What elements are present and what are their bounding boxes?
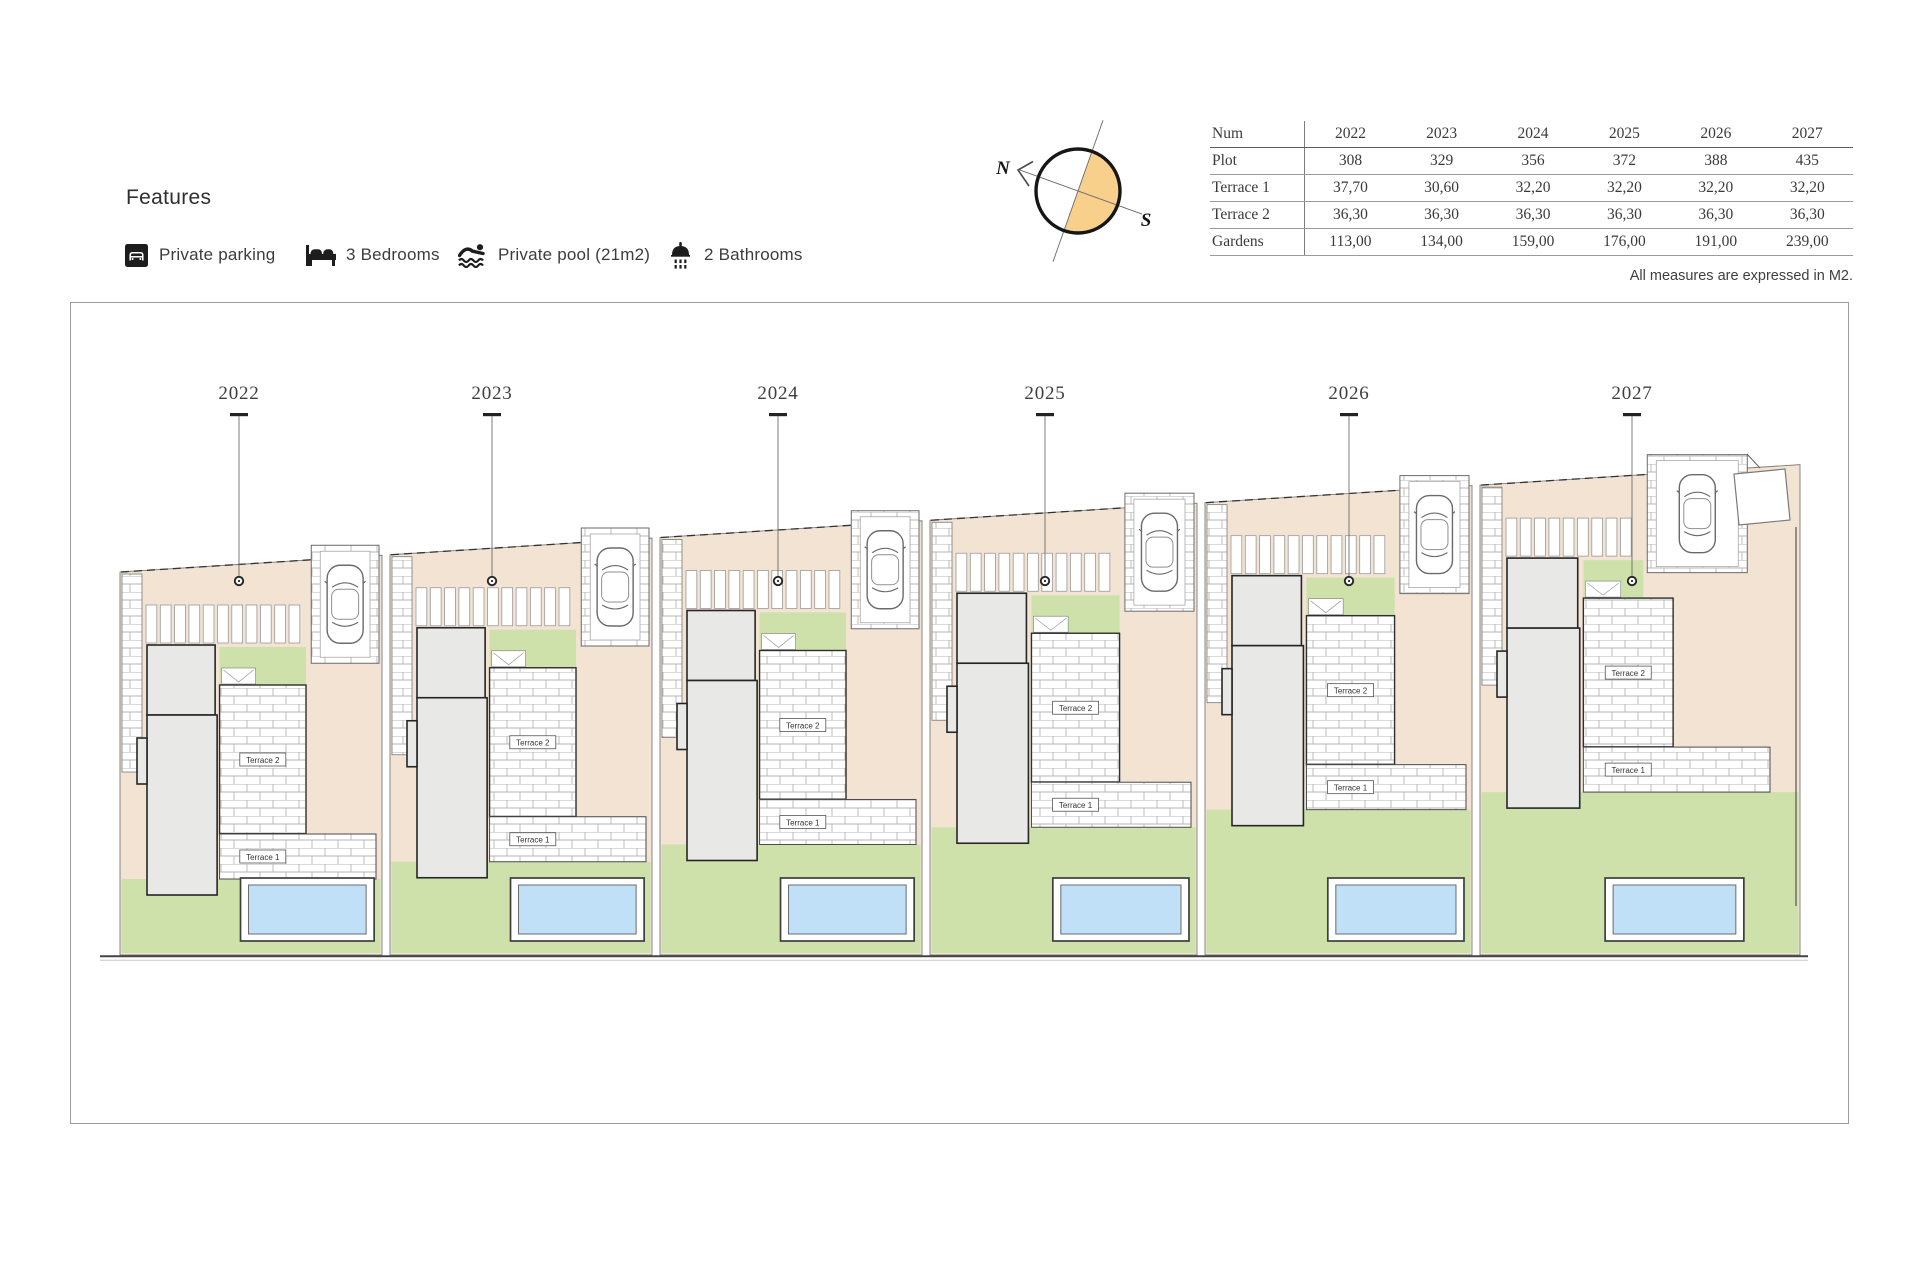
plot-year-label: 2025 — [1024, 383, 1065, 404]
table-cell: 191,00 — [1670, 229, 1761, 256]
table-cell: 239,00 — [1762, 229, 1853, 256]
pergola-slat — [1013, 553, 1024, 591]
table-cell: 30,60 — [1396, 175, 1487, 202]
pergola-slat — [1274, 536, 1285, 574]
car-icon — [595, 548, 636, 626]
pergola-slat — [1345, 536, 1356, 574]
table-header-cell: 2025 — [1579, 121, 1670, 148]
plot-2027: Terrace 2Terrace 1 — [1480, 455, 1800, 955]
table-cell: 134,00 — [1396, 229, 1487, 256]
pergola-slat — [1620, 518, 1631, 556]
row-label: Plot — [1210, 148, 1305, 175]
house — [947, 593, 1028, 843]
feature-label: 3 Bedrooms — [346, 245, 440, 265]
swimmer-icon — [458, 243, 486, 268]
table-cell: 36,30 — [1579, 202, 1670, 229]
terrace2-label: Terrace 2 — [1612, 669, 1646, 678]
row-label: Gardens — [1210, 229, 1305, 256]
pergola-slat — [999, 553, 1010, 591]
shower-icon — [670, 242, 691, 269]
house — [677, 610, 757, 860]
pergola-slat — [985, 553, 996, 591]
pergola-slat — [1303, 536, 1314, 574]
table-cell: 36,30 — [1305, 202, 1396, 229]
table-cell: 32,20 — [1670, 175, 1761, 202]
plot-2024: Terrace 2Terrace 1 — [660, 511, 922, 955]
table-cell: 36,30 — [1762, 202, 1853, 229]
table-cell: 388 — [1670, 148, 1761, 175]
terrace1-label: Terrace 1 — [786, 818, 820, 827]
table-header-cell: 2026 — [1670, 121, 1761, 148]
pergola-slat — [1374, 536, 1385, 574]
table-header-cell: Num — [1210, 121, 1305, 148]
plot-2023: Terrace 2Terrace 1 — [390, 528, 652, 955]
site-plan: Terrace 2Terrace 1Terrace 2Terrace 1Terr… — [70, 302, 1849, 1124]
table-cell: 113,00 — [1305, 229, 1396, 256]
terrace1-label: Terrace 1 — [1612, 766, 1646, 775]
table-cell: 36,30 — [1670, 202, 1761, 229]
plot-2025: Terrace 2Terrace 1 — [930, 493, 1197, 955]
terrace2-label: Terrace 2 — [246, 756, 280, 765]
table-header-cell: 2024 — [1487, 121, 1578, 148]
house — [407, 628, 487, 878]
compass-north-label: N — [995, 158, 1011, 179]
pergola-slat — [1070, 553, 1081, 591]
measures-note: All measures are expressed in M2. — [1210, 268, 1853, 284]
pergola-slat — [246, 605, 257, 643]
table-cell: 329 — [1396, 148, 1487, 175]
pool-water — [1336, 885, 1456, 934]
compass: N S — [975, 112, 1185, 272]
house — [137, 645, 217, 895]
pergola-slat — [218, 605, 229, 643]
feature-bathrooms: 2 Bathrooms — [670, 241, 803, 269]
terrace1-label: Terrace 1 — [246, 853, 280, 862]
parking-icon — [125, 244, 148, 267]
pergola-slat — [1549, 518, 1560, 556]
row-label: Terrace 1 — [1210, 175, 1305, 202]
pergola-slat — [1231, 536, 1242, 574]
car-icon — [325, 565, 366, 643]
terrace2-label: Terrace 2 — [516, 739, 550, 748]
pergola-slat — [686, 570, 697, 608]
pergola-slat — [502, 588, 513, 626]
pergola-slat — [1506, 518, 1517, 556]
table-row: Plot308329356372388435 — [1210, 148, 1853, 175]
table-header-cell: 2023 — [1396, 121, 1487, 148]
pergola-slat — [1085, 553, 1096, 591]
table-header-cell: 2022 — [1305, 121, 1396, 148]
table-cell: 372 — [1579, 148, 1670, 175]
table-row: Gardens113,00134,00159,00176,00191,00239… — [1210, 229, 1853, 256]
plot-2022: Terrace 2Terrace 1 — [120, 545, 382, 955]
pergola-slat — [545, 588, 556, 626]
feature-bedrooms: 3 Bedrooms — [306, 241, 440, 269]
page: { "features": { "title": "Features", "it… — [0, 0, 1920, 1280]
pergola-slat — [473, 588, 484, 626]
pergola-slat — [1520, 518, 1531, 556]
feature-label: Private pool (21m2) — [498, 245, 650, 265]
pergola-slat — [1317, 536, 1328, 574]
table-cell: 308 — [1305, 148, 1396, 175]
row-label: Terrace 2 — [1210, 202, 1305, 229]
terrace1-label: Terrace 1 — [1059, 801, 1093, 810]
pergola-slat — [1578, 518, 1589, 556]
house — [1222, 576, 1303, 826]
pergola-slat — [1535, 518, 1546, 556]
table-cell: 36,30 — [1487, 202, 1578, 229]
table-header-cell: 2027 — [1762, 121, 1853, 148]
pergola-slat — [416, 588, 427, 626]
pergola-slat — [729, 570, 740, 608]
pergola-slat — [1099, 553, 1110, 591]
pergola-slat — [516, 588, 527, 626]
bed-icon — [306, 245, 336, 266]
pergola-slat — [260, 605, 271, 643]
pergola-slat — [956, 553, 967, 591]
pergola-slat — [232, 605, 243, 643]
pergola-slat — [829, 570, 840, 608]
car-icon — [1677, 475, 1718, 553]
terrace2-label: Terrace 2 — [786, 721, 820, 730]
car-icon — [1414, 496, 1455, 574]
pergola-slat — [1563, 518, 1574, 556]
measurements-table: Num202220232024202520262027Plot308329356… — [1210, 121, 1853, 256]
pergola-slat — [146, 605, 157, 643]
pergola-slat — [970, 553, 981, 591]
pergola-slat — [1288, 536, 1299, 574]
pergola-slat — [700, 570, 711, 608]
car-icon — [1139, 513, 1180, 591]
plot-year-label: 2027 — [1611, 383, 1652, 404]
pergola-slat — [160, 605, 171, 643]
table-cell: 37,70 — [1305, 175, 1396, 202]
terrace1-label: Terrace 1 — [1334, 784, 1368, 793]
feature-pool: Private pool (21m2) — [458, 241, 650, 269]
table-row: Terrace 137,7030,6032,2032,2032,2032,20 — [1210, 175, 1853, 202]
table-cell: 356 — [1487, 148, 1578, 175]
house — [1497, 558, 1580, 808]
terrace1-label: Terrace 1 — [516, 836, 550, 845]
table-cell: 36,30 — [1396, 202, 1487, 229]
plot-year-label: 2024 — [757, 383, 798, 404]
table-row: Terrace 236,3036,3036,3036,3036,3036,30 — [1210, 202, 1853, 229]
terrace2-label: Terrace 2 — [1059, 704, 1093, 713]
compass-south-label: S — [1141, 210, 1152, 231]
terrace2-label: Terrace 2 — [1334, 687, 1368, 696]
pool-water — [249, 885, 367, 934]
pergola-slat — [488, 588, 499, 626]
pergola-slat — [1606, 518, 1617, 556]
pergola-slat — [430, 588, 441, 626]
table-cell: 159,00 — [1487, 229, 1578, 256]
pergola-slat — [786, 570, 797, 608]
table-cell: 32,20 — [1579, 175, 1670, 202]
car-icon — [865, 531, 906, 609]
pool-water — [1613, 885, 1736, 934]
table-cell: 32,20 — [1762, 175, 1853, 202]
pool-water — [519, 885, 637, 934]
table-header-row: Num202220232024202520262027 — [1210, 121, 1853, 148]
pergola-slat — [715, 570, 726, 608]
pergola-slat — [1592, 518, 1603, 556]
pool-water — [1061, 885, 1181, 934]
feature-label: 2 Bathrooms — [704, 245, 803, 265]
pergola-slat — [203, 605, 214, 643]
pergola-slat — [743, 570, 754, 608]
plot-year-label: 2026 — [1328, 383, 1369, 404]
pergola-slat — [559, 588, 570, 626]
table-cell: 32,20 — [1487, 175, 1578, 202]
feature-label: Private parking — [159, 245, 275, 265]
plot-2026: Terrace 2Terrace 1 — [1205, 476, 1472, 955]
features-title: Features — [126, 186, 211, 210]
pergola-slat — [815, 570, 826, 608]
pergola-slat — [189, 605, 200, 643]
pergola-slat — [1360, 536, 1371, 574]
pergola-slat — [1028, 553, 1039, 591]
pergola-slat — [758, 570, 769, 608]
pergola-slat — [1056, 553, 1067, 591]
pergola-slat — [175, 605, 186, 643]
pergola-slat — [275, 605, 286, 643]
pool-water — [789, 885, 907, 934]
pergola-slat — [445, 588, 456, 626]
feature-private-parking: Private parking — [125, 241, 275, 269]
corner-structure — [1734, 469, 1790, 525]
measurements: Num202220232024202520262027Plot308329356… — [1210, 121, 1853, 284]
table-cell: 435 — [1762, 148, 1853, 175]
pergola-slat — [1260, 536, 1271, 574]
table-cell: 176,00 — [1579, 229, 1670, 256]
plot-year-label: 2023 — [471, 383, 512, 404]
pergola-slat — [289, 605, 300, 643]
pergola-slat — [459, 588, 470, 626]
plot-year-label: 2022 — [218, 383, 259, 404]
pergola-slat — [800, 570, 811, 608]
pergola-slat — [1331, 536, 1342, 574]
pergola-slat — [530, 588, 541, 626]
pergola-slat — [1245, 536, 1256, 574]
